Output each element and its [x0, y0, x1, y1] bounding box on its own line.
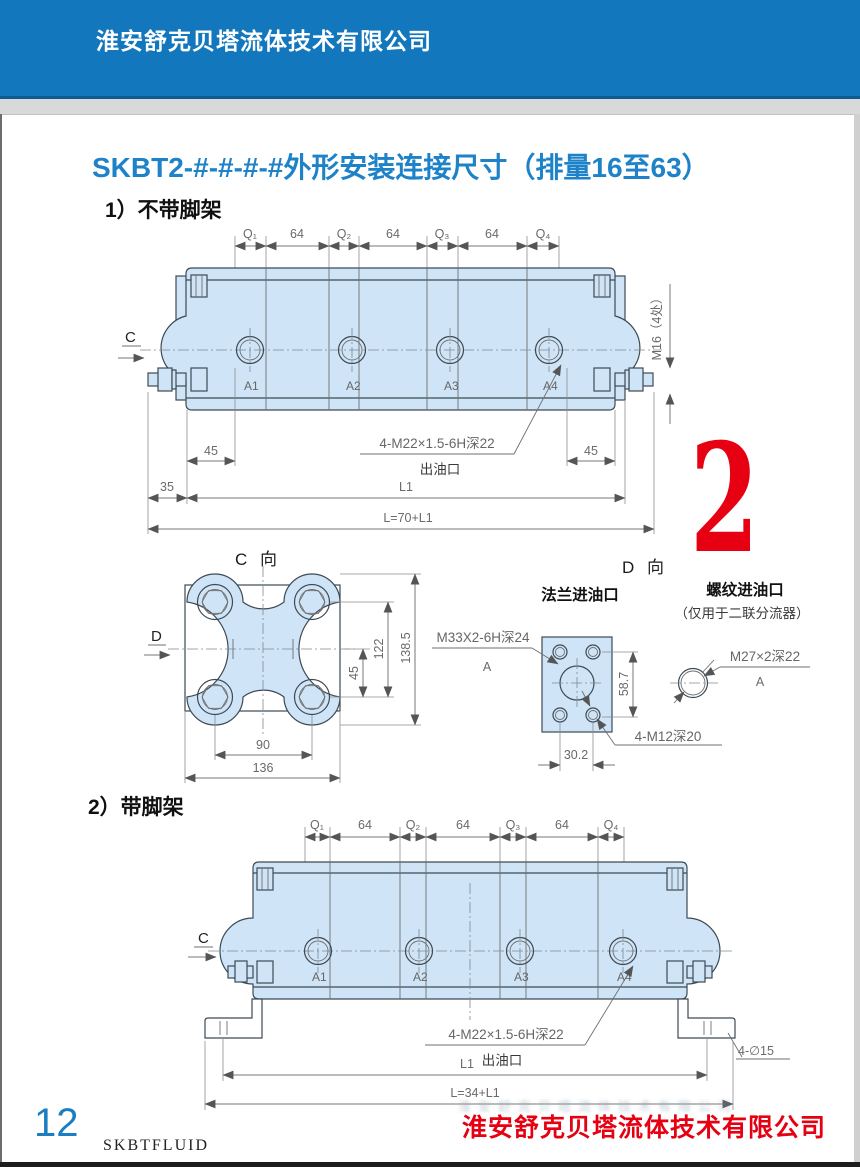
dim-q4: Q₄	[604, 818, 619, 832]
outlet-label: 出油口	[420, 462, 461, 477]
dim-q1: Q₁	[310, 818, 324, 832]
dim-l1: L1	[399, 480, 413, 494]
port-a3-label: A3	[444, 379, 459, 393]
port-a3-label: A3	[514, 970, 529, 984]
dim-64a: 64	[290, 227, 304, 241]
stud-spec: M16（4处）	[650, 284, 670, 424]
view-c: C 向 D	[130, 538, 460, 796]
header-company-name: 淮安舒克贝塔流体技术有限公司	[96, 22, 432, 56]
brand-text: SKBTFLUID	[103, 1137, 209, 1155]
page-number: 12	[34, 1101, 79, 1146]
dim-q4: Q₄	[536, 227, 551, 241]
catalog-page: 淮安舒克贝塔流体技术有限公司 SKBT2-#-#-#-#外形安装连接尺寸（排量1…	[0, 0, 860, 1167]
dim-64c: 64	[485, 227, 499, 241]
bolt-holes-spec: 4-M12深20	[597, 719, 722, 745]
flange-inlet-title: 法兰进油口	[541, 585, 619, 604]
thread-inlet-note: （仅用于二联分流器）	[675, 606, 810, 621]
stud-spec-label: M16（4处）	[650, 292, 664, 361]
foot-holes-callout: 4-∅15	[728, 1033, 790, 1059]
page-title: SKBT2-#-#-#-#外形安装连接尺寸（排量16至63）	[92, 146, 710, 186]
view-c-arrow: C	[188, 930, 216, 957]
view-c-arrow-label: C	[198, 930, 209, 947]
dim-q3: Q₃	[506, 818, 521, 832]
dim-136: 136	[253, 761, 274, 775]
flange-spec-label: M33X2-6H深24	[436, 630, 530, 645]
view-d: D 向 法兰进油口 螺纹进油口 （仅用于二联分流器） M33X2-6H深24 A…	[430, 545, 830, 780]
thread-spec-label: M27×2深22	[730, 649, 800, 664]
outlet-spec: 4-M22×1.5-6H深22	[379, 436, 494, 451]
outlet-spec: 4-M22×1.5-6H深22	[448, 1027, 563, 1042]
port-a2-label: A2	[346, 379, 361, 393]
bolt-holes-label: 4-M12深20	[635, 729, 702, 744]
drawing-no-bracket: Q₁ 64 Q₂ 64 Q₃ 64 Q₄	[110, 218, 690, 538]
dim-chain-top: Q₁ 64 Q₂ 64 Q₃ 64 Q₄	[305, 818, 624, 862]
page-bottom-border	[0, 1162, 860, 1167]
view-c-title: C 向	[235, 550, 281, 569]
dim-q1: Q₁	[243, 227, 257, 241]
dim-q2: Q₂	[337, 227, 352, 241]
flange-spec: M33X2-6H深24 A	[432, 630, 558, 674]
view-c-arrow: C	[118, 329, 144, 358]
footer-company-name: 淮安舒克贝塔流体技术有限公司	[462, 1108, 826, 1144]
end-cover	[168, 566, 358, 734]
dim-64b: 64	[456, 818, 470, 832]
divider-body	[208, 862, 732, 1020]
dim-45-right: 45	[584, 444, 598, 458]
dim-122: 122	[372, 639, 386, 660]
port-a2-label: A2	[413, 970, 428, 984]
port-a4-label: A4	[543, 379, 558, 393]
dim-64a: 64	[358, 818, 372, 832]
dim-q2: Q₂	[406, 818, 421, 832]
dim-l1: L1	[460, 1057, 474, 1071]
dim-64c: 64	[555, 818, 569, 832]
header-divider-band	[0, 99, 860, 115]
dim-q3: Q₃	[435, 227, 450, 241]
dim-45-left: 45	[204, 444, 218, 458]
threaded-port: M27×2深22 A	[670, 649, 810, 703]
flange-plate	[542, 637, 612, 732]
page-header: 淮安舒克贝塔流体技术有限公司	[0, 0, 860, 99]
dim-138-5: 138.5	[399, 632, 413, 663]
dim-total: L=70+L1	[383, 511, 432, 525]
foot-holes-label: 4-∅15	[738, 1044, 774, 1058]
view-d-title: D 向	[622, 558, 668, 577]
drawing-with-bracket: Q₁ 64 Q₂ 64 Q₃ 64 Q₄	[180, 815, 790, 1115]
port-a1-label: A1	[312, 970, 327, 984]
dim-30-2-label: 30.2	[564, 748, 588, 762]
dim-58-7-label: 58.7	[617, 672, 631, 696]
port-a1-label: A1	[244, 379, 259, 393]
thread-inlet-title: 螺纹进油口	[706, 580, 784, 599]
dims-right: 45 122 138.5	[330, 574, 421, 725]
divider-body	[140, 268, 662, 410]
dim-64b: 64	[386, 227, 400, 241]
thread-ref: A	[756, 675, 765, 689]
dim-35: 35	[160, 480, 174, 494]
page-right-border	[854, 114, 860, 1167]
view-d-arrow: D	[144, 628, 170, 655]
page-left-border	[0, 114, 2, 1167]
view-d-arrow-label: D	[151, 628, 162, 645]
dim-chain-top: Q₁ 64 Q₂ 64 Q₃ 64 Q₄	[235, 227, 559, 268]
outlet-label: 出油口	[482, 1053, 523, 1068]
view-c-arrow-label: C	[125, 329, 136, 346]
flange-ref: A	[483, 660, 492, 674]
dim-90: 90	[256, 738, 270, 752]
dim-45: 45	[347, 666, 361, 680]
